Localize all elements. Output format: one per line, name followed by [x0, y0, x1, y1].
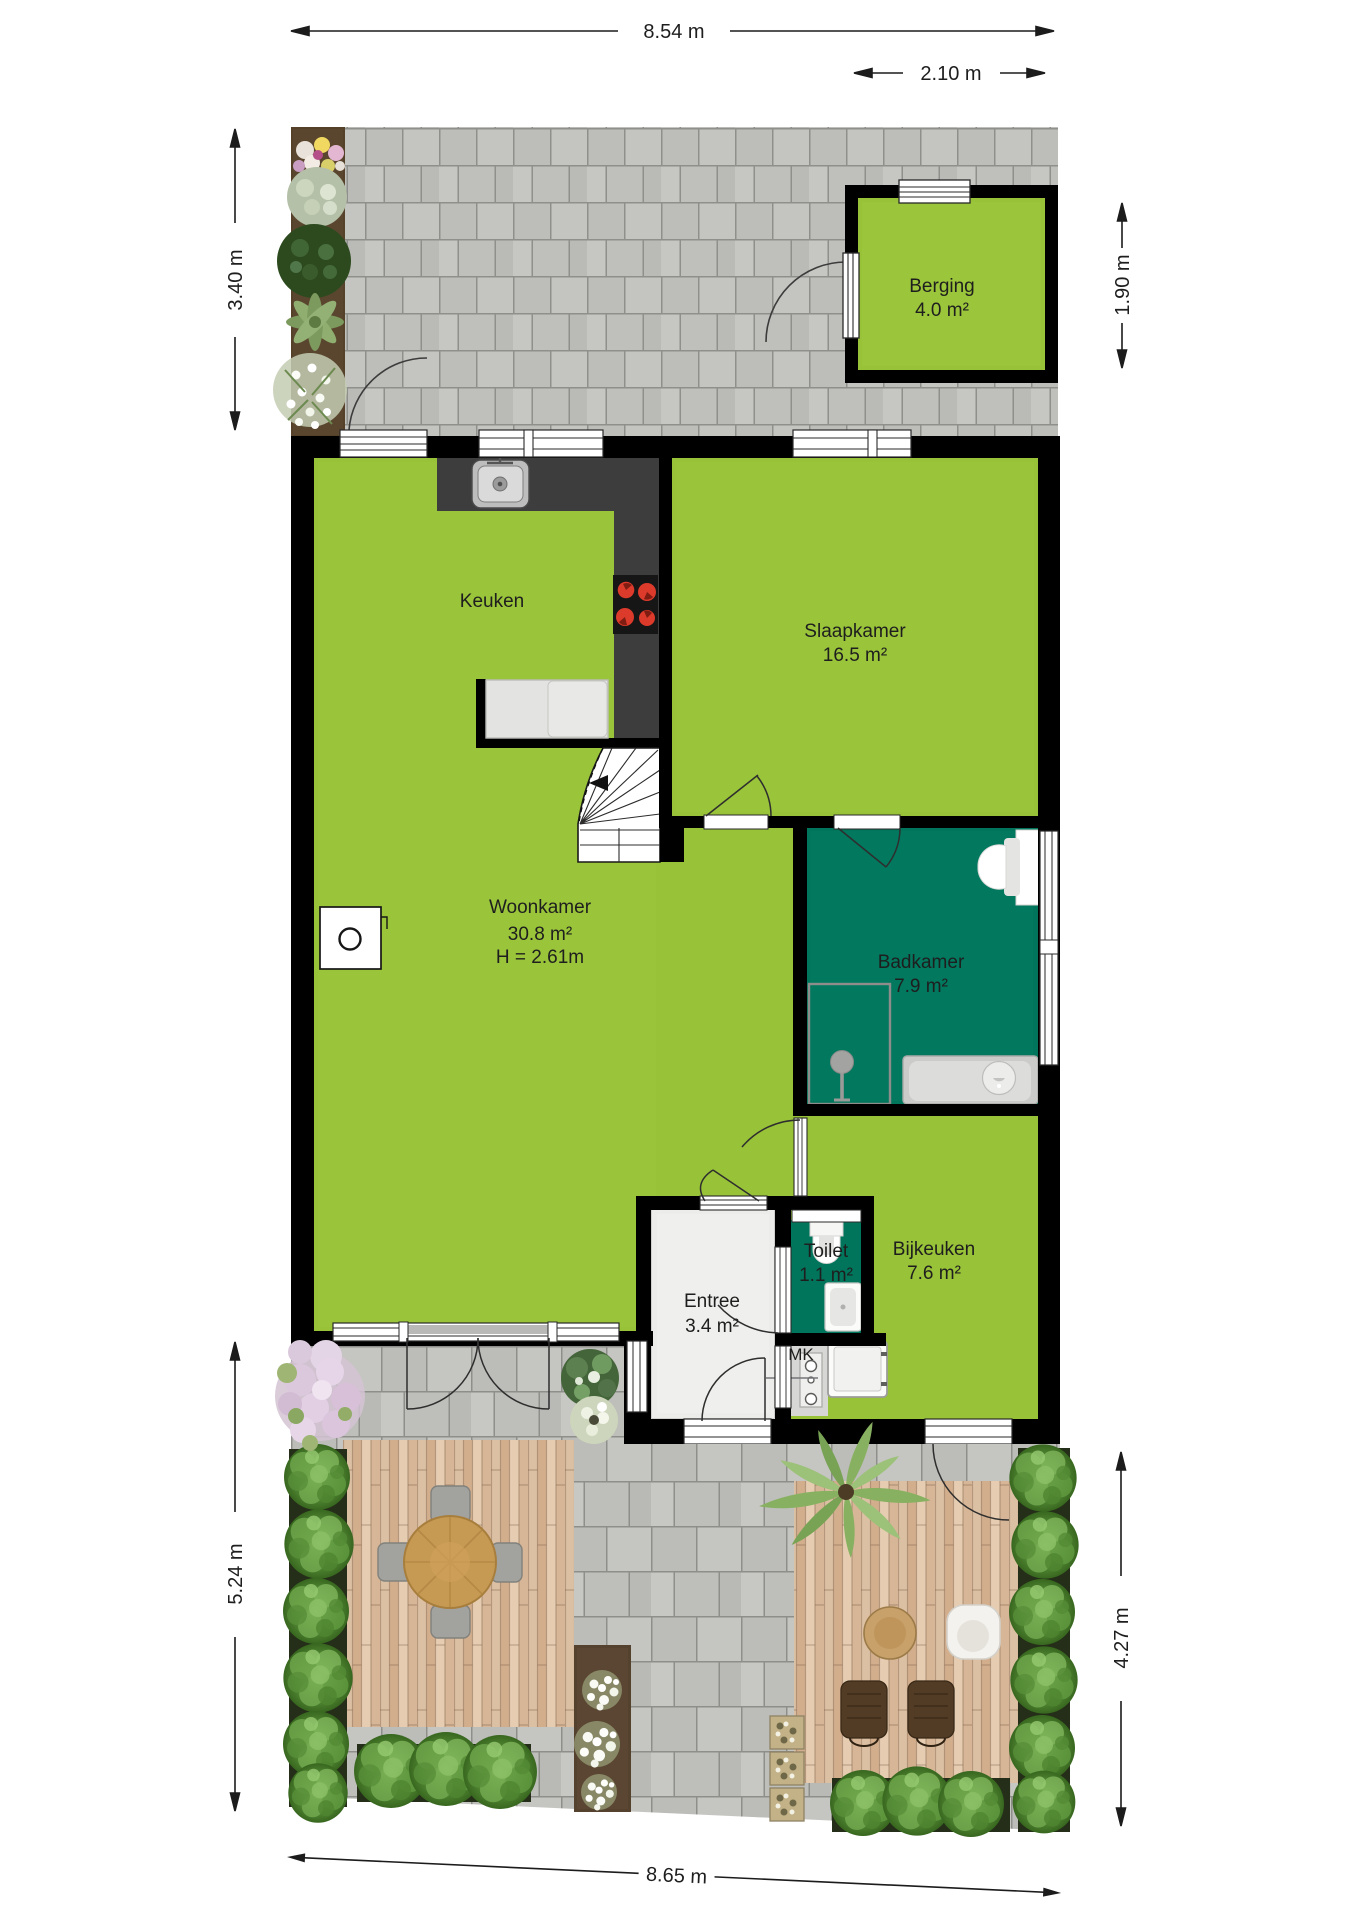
svg-text:Keuken: Keuken — [460, 591, 524, 612]
svg-text:4.0 m²: 4.0 m² — [915, 300, 969, 321]
svg-text:3.40 m: 3.40 m — [225, 249, 247, 310]
svg-text:Toilet: Toilet — [804, 1241, 849, 1262]
svg-text:Berging: Berging — [909, 276, 975, 297]
svg-text:5.24 m: 5.24 m — [225, 1543, 247, 1604]
svg-text:8.65 m: 8.65 m — [645, 1864, 707, 1889]
svg-text:30.8 m²: 30.8 m² — [508, 924, 572, 945]
svg-text:Entree: Entree — [684, 1291, 740, 1312]
svg-text:16.5 m²: 16.5 m² — [823, 645, 887, 666]
svg-text:7.9 m²: 7.9 m² — [894, 976, 948, 997]
svg-text:MK: MK — [788, 1345, 814, 1364]
svg-text:Slaapkamer: Slaapkamer — [804, 621, 906, 642]
svg-text:3.4 m²: 3.4 m² — [685, 1316, 739, 1337]
svg-text:4.27 m: 4.27 m — [1111, 1607, 1133, 1668]
svg-text:2.10 m: 2.10 m — [920, 63, 981, 85]
svg-text:8.54 m: 8.54 m — [643, 21, 704, 43]
svg-text:1.1 m²: 1.1 m² — [799, 1265, 853, 1286]
svg-text:Badkamer: Badkamer — [878, 952, 965, 973]
svg-text:Woonkamer: Woonkamer — [489, 897, 592, 918]
svg-text:H = 2.61m: H = 2.61m — [496, 947, 584, 968]
svg-text:Bijkeuken: Bijkeuken — [893, 1239, 975, 1260]
svg-text:7.6 m²: 7.6 m² — [907, 1263, 961, 1284]
svg-text:1.90 m: 1.90 m — [1112, 254, 1134, 315]
